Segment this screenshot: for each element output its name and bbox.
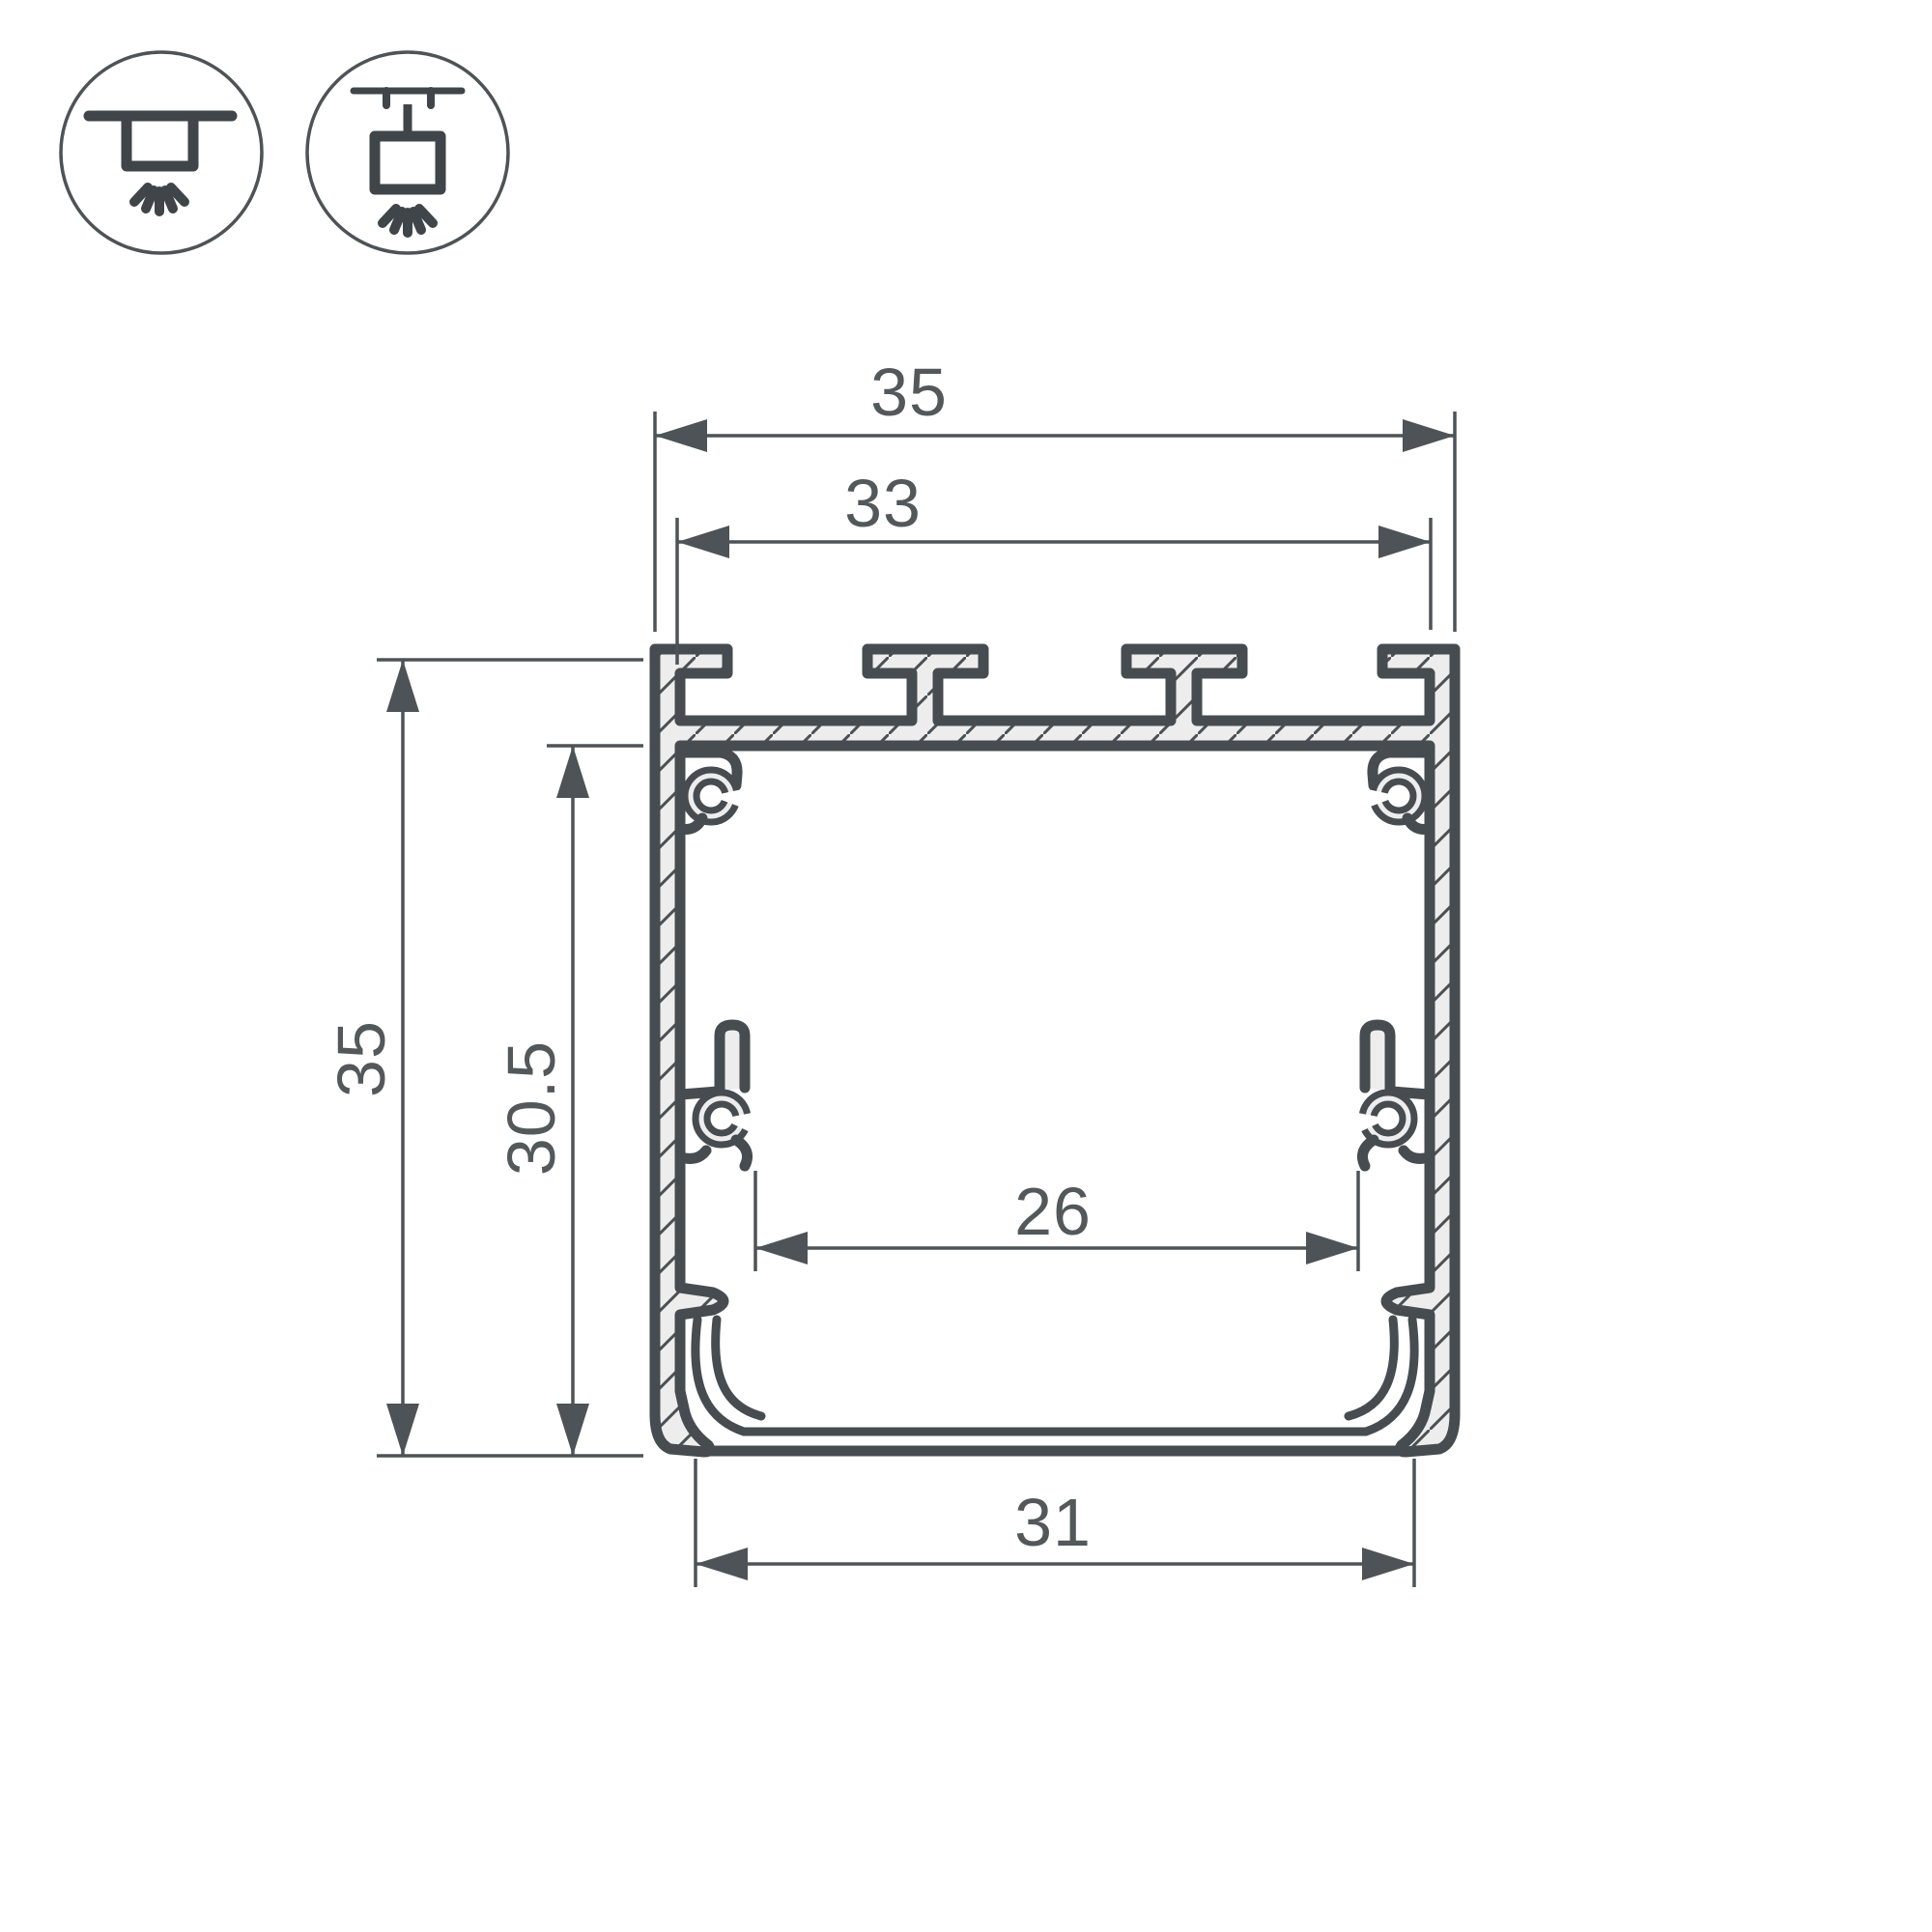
technical-drawing-page: 35 33 35 30.5 26 31 <box>0 0 1932 1932</box>
screw-bosses-left <box>681 753 782 1166</box>
diffuser <box>696 1320 1414 1451</box>
label-inner-height: 30.5 <box>494 1040 569 1176</box>
dimension-lines <box>377 412 1455 1587</box>
lamp-body <box>375 136 440 189</box>
label-overall-height: 35 <box>324 1020 399 1097</box>
label-inner-width: 26 <box>1014 1174 1092 1249</box>
dimension-arrowheads <box>386 419 1455 1580</box>
label-bottom-width: 31 <box>1014 1485 1092 1560</box>
lamp-body <box>127 118 193 166</box>
surface-mount-light-icon <box>61 52 262 253</box>
screw-bosses-right <box>1327 753 1429 1166</box>
label-top-slot-width: 33 <box>844 466 922 541</box>
light-rays <box>383 209 433 233</box>
profile-drawing-svg: 35 33 35 30.5 26 31 <box>0 0 1932 1932</box>
profile-body <box>655 649 1455 1452</box>
dim-top-slot-width <box>677 518 1431 665</box>
suspended-mount-light-icon <box>307 52 508 253</box>
profile-cross-section <box>655 649 1455 1452</box>
dim-overall-width <box>655 412 1455 632</box>
label-overall-width: 35 <box>870 355 948 430</box>
icon-circle <box>61 52 262 253</box>
light-rays <box>134 187 185 212</box>
